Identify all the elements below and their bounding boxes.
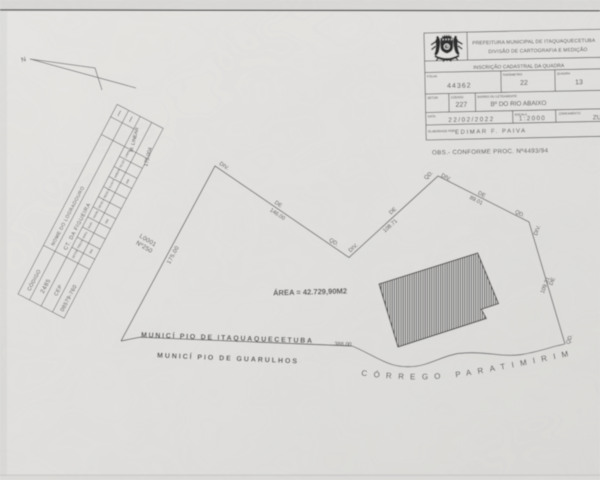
svg-text:388.00: 388.00 <box>334 342 351 349</box>
svg-text:22/02/2022: 22/02/2022 <box>448 116 494 124</box>
svg-text:ELABORADO POR:: ELABORADO POR: <box>428 129 456 134</box>
svg-text:PARÂMETRO: PARÂMETRO <box>503 72 523 76</box>
svg-text:22: 22 <box>520 80 528 87</box>
svg-text:CODIGO: CODIGO <box>451 95 464 99</box>
svg-text:ZUE1: ZUE1 <box>593 114 600 121</box>
svg-text:DATA: DATA <box>428 114 437 118</box>
svg-text:13: 13 <box>575 79 583 86</box>
svg-text:1:2000: 1:2000 <box>519 115 546 123</box>
svg-text:QUADRA: QUADRA <box>557 71 571 75</box>
svg-text:44362: 44362 <box>447 83 472 91</box>
svg-text:FOLHA: FOLHA <box>427 74 438 78</box>
svg-text:227: 227 <box>455 102 467 109</box>
svg-text:Bº DO RIO ABAIXO: Bº DO RIO ABAIXO <box>490 100 546 108</box>
svg-text:SETOR: SETOR <box>427 96 438 100</box>
svg-text:BAIRRO OU LOTEAMENTO: BAIRRO OU LOTEAMENTO <box>477 94 517 99</box>
svg-text:ZONEAMENTO: ZONEAMENTO <box>559 111 581 115</box>
